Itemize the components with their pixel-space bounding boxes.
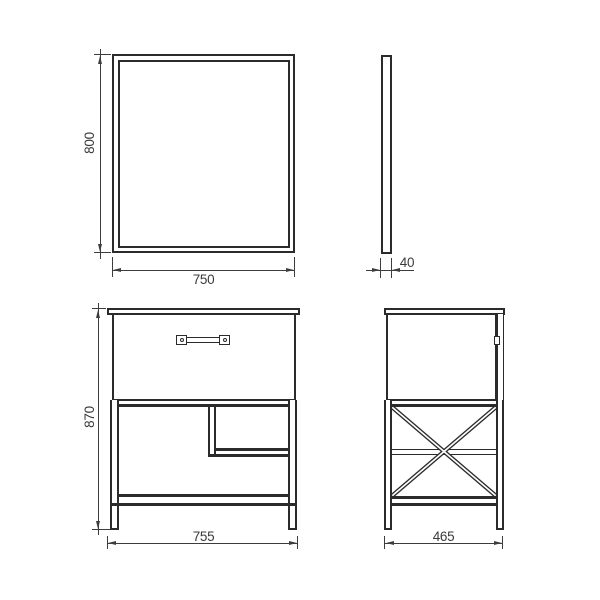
handle-side-profile [494, 336, 500, 345]
frame-top-rail [119, 404, 288, 407]
handle-bar [186, 337, 220, 344]
front-leg-left [110, 400, 119, 530]
screw-icon [223, 338, 227, 342]
screw-icon [180, 338, 184, 342]
extension-line [112, 257, 113, 277]
shelf-lower-edge [208, 454, 290, 457]
cross-brace-x [390, 405, 498, 498]
handle-end-plate-left [176, 335, 187, 345]
arrowhead-right-icon [286, 268, 294, 272]
arrowhead-right-icon [372, 268, 380, 272]
arrowhead-right-icon [494, 541, 502, 545]
frame-lower-edge [119, 494, 288, 497]
arrowhead-left-icon [386, 541, 394, 545]
cabinet-side-body [386, 313, 497, 401]
extension-line [380, 258, 381, 278]
dimension-label-cabinet-height: 870 [72, 403, 106, 431]
arrowhead-down-icon [96, 521, 100, 529]
front-leg-right [288, 400, 297, 530]
dimension-label-cabinet-width: 755 [183, 529, 224, 543]
drawer-front-panel [112, 313, 296, 401]
arrowhead-up-icon [96, 310, 100, 318]
arrowhead-right-icon [289, 541, 297, 545]
side-frame-bottom-rail [392, 503, 496, 506]
handle-end-plate-right [219, 335, 230, 345]
extension-tick [94, 252, 111, 253]
arrowhead-left-icon [108, 541, 116, 545]
mirror-side-panel [381, 55, 392, 254]
frame-bottom-rail [110, 503, 297, 506]
drawer-front-edge-strip [497, 313, 504, 401]
dimension-label-cabinet-depth: 465 [423, 529, 464, 543]
shelf-upper-edge [214, 448, 288, 451]
arrowhead-up-icon [98, 56, 102, 64]
drawing-canvas: 800 750 40 [0, 0, 600, 600]
extension-tick [92, 529, 110, 530]
dimension-label-mirror-width: 750 [183, 272, 224, 286]
extension-line [294, 257, 295, 277]
arrowhead-left-icon [113, 268, 121, 272]
extension-tick [94, 54, 111, 55]
dimension-label-mirror-depth: 40 [395, 256, 419, 269]
dimension-label-mirror-height: 800 [72, 129, 106, 157]
mirror-inner-frame [118, 60, 290, 248]
arrowhead-down-icon [98, 244, 102, 252]
